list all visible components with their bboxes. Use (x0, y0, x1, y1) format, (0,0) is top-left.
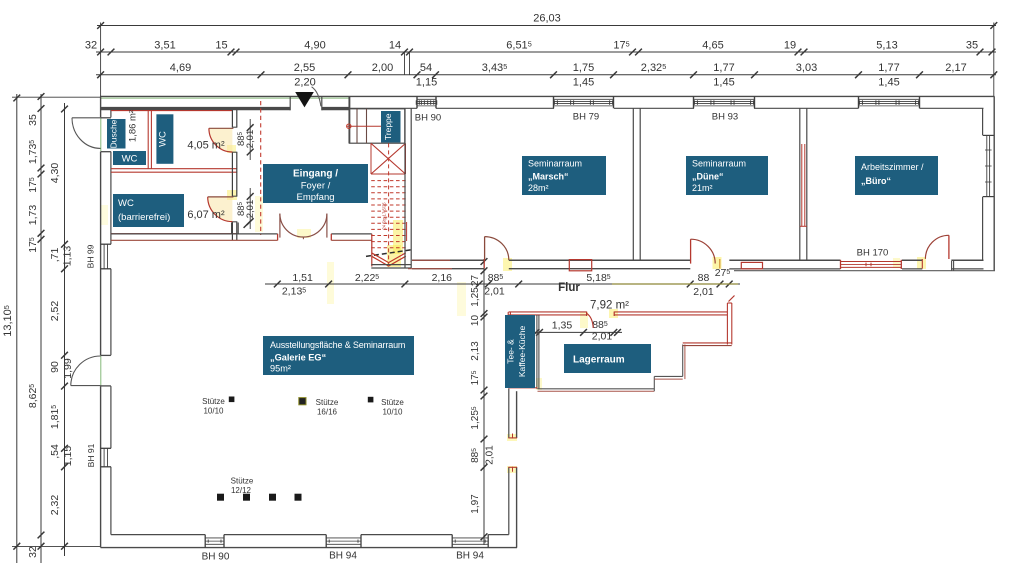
svg-text:Seminarraum: Seminarraum (692, 159, 746, 169)
svg-text:10/10: 10/10 (382, 408, 403, 417)
svg-text:90: 90 (49, 361, 61, 373)
svg-text:21m²: 21m² (692, 183, 713, 193)
svg-text:WC: WC (122, 154, 138, 165)
svg-text:35: 35 (27, 114, 39, 126)
svg-text:28m²: 28m² (528, 183, 549, 193)
svg-text:BH 94: BH 94 (456, 551, 484, 562)
svg-text:6,07 m²: 6,07 m² (187, 209, 225, 221)
svg-text:„Düne“: „Düne“ (692, 172, 724, 182)
svg-text:4,90: 4,90 (304, 40, 325, 52)
svg-text:„Galerie EG“: „Galerie EG“ (270, 353, 326, 363)
svg-text:Tee- &: Tee- & (506, 339, 516, 364)
svg-text:95m²: 95m² (270, 364, 291, 374)
svg-text:Flur: Flur (558, 282, 580, 294)
svg-text:Kaffee-Küche: Kaffee-Küche (517, 326, 527, 378)
svg-text:7,92 m²: 7,92 m² (590, 300, 629, 312)
svg-text:3,03: 3,03 (796, 62, 817, 74)
svg-text:3,51: 3,51 (154, 40, 175, 52)
svg-text:2,01: 2,01 (245, 130, 256, 149)
svg-text:Treppe: Treppe (383, 113, 393, 140)
svg-text:Seminarraum: Seminarraum (528, 159, 582, 169)
svg-text:,71: ,71 (49, 248, 61, 263)
svg-text:4,05 m²: 4,05 m² (187, 140, 225, 152)
svg-text:4,65: 4,65 (702, 40, 723, 52)
svg-text:14: 14 (389, 40, 401, 52)
svg-text:35: 35 (966, 40, 978, 52)
svg-text:32: 32 (85, 40, 97, 52)
svg-text:1,75: 1,75 (573, 62, 594, 74)
svg-text:BH 94: BH 94 (329, 551, 357, 562)
svg-text:2,01: 2,01 (245, 200, 256, 219)
svg-text:BH 93: BH 93 (712, 112, 738, 123)
svg-text:4,30: 4,30 (49, 163, 61, 184)
svg-text:10/10: 10/10 (203, 407, 224, 416)
svg-text:1,45: 1,45 (713, 77, 734, 89)
svg-text:10: 10 (470, 315, 481, 327)
svg-text:Eingang /: Eingang / (293, 169, 338, 180)
svg-text:Empfang: Empfang (296, 192, 334, 203)
svg-text:1,25: 1,25 (470, 287, 481, 307)
svg-text:2,01: 2,01 (592, 331, 613, 343)
svg-text:1,13: 1,13 (62, 246, 74, 267)
svg-text:BH 91: BH 91 (86, 443, 96, 467)
svg-text:1,97: 1,97 (470, 494, 481, 514)
svg-text:13,105: 13,105 (2, 305, 14, 337)
svg-text:BH 79: BH 79 (573, 112, 599, 123)
svg-text:WC: WC (158, 131, 169, 147)
svg-text:1,15: 1,15 (416, 77, 437, 89)
svg-text:88: 88 (698, 272, 710, 284)
svg-text:WC: WC (118, 198, 134, 209)
svg-text:BH 90: BH 90 (415, 113, 441, 124)
svg-text:BH 99: BH 99 (86, 244, 96, 268)
svg-text:2,32: 2,32 (49, 495, 61, 516)
svg-text:2,01: 2,01 (485, 445, 496, 465)
svg-text:Stütze: Stütze (202, 397, 225, 406)
svg-text:Stütze: Stütze (381, 398, 404, 407)
svg-text:2,00: 2,00 (372, 62, 393, 74)
svg-text:19: 19 (784, 40, 796, 52)
svg-text:12/12: 12/12 (231, 486, 252, 495)
svg-text:32: 32 (27, 546, 39, 558)
svg-text:„Büro“: „Büro“ (861, 176, 891, 186)
svg-text:„Marsch“: „Marsch“ (528, 172, 569, 182)
svg-text:Stütze: Stütze (231, 477, 254, 486)
svg-text:Arbeitszimmer /: Arbeitszimmer / (861, 162, 924, 172)
svg-text:24 Stg 17,5/25: 24 Stg 17,5/25 (382, 202, 387, 230)
svg-text:1,51: 1,51 (292, 272, 313, 284)
svg-text:Stütze: Stütze (316, 398, 339, 407)
svg-text:1,77: 1,77 (713, 62, 734, 74)
svg-text:1,86 m²: 1,86 m² (128, 110, 139, 142)
svg-text:Dusche: Dusche (109, 119, 119, 148)
svg-text:2,16: 2,16 (432, 272, 453, 284)
svg-text:2,13: 2,13 (470, 341, 481, 361)
svg-text:1,45: 1,45 (878, 77, 899, 89)
svg-text:54: 54 (420, 62, 432, 74)
svg-text:1,77: 1,77 (878, 62, 899, 74)
svg-text:2,01: 2,01 (693, 286, 714, 298)
svg-text:1,45: 1,45 (573, 77, 594, 89)
svg-text:BH 90: BH 90 (202, 552, 230, 563)
svg-text:4,69: 4,69 (170, 62, 191, 74)
svg-text:2,17: 2,17 (945, 62, 966, 74)
svg-text:27: 27 (470, 275, 481, 287)
svg-text:Foyer /: Foyer / (301, 181, 331, 192)
svg-text:5,13: 5,13 (876, 40, 897, 52)
svg-text:15: 15 (215, 40, 227, 52)
svg-text:(barrierefrei): (barrierefrei) (118, 212, 170, 223)
svg-text:1,35: 1,35 (552, 320, 573, 332)
svg-text:1,73: 1,73 (27, 205, 39, 226)
svg-text:2,52: 2,52 (49, 301, 61, 322)
svg-text:2,55: 2,55 (294, 62, 315, 74)
svg-text:16/16: 16/16 (317, 408, 338, 417)
svg-text:BH 170: BH 170 (857, 248, 889, 259)
svg-text:26,03: 26,03 (533, 13, 561, 25)
svg-text:Lagerraum: Lagerraum (573, 355, 625, 366)
svg-text:2,01: 2,01 (484, 286, 505, 298)
svg-text:,54: ,54 (49, 444, 61, 459)
svg-text:1,15: 1,15 (62, 446, 74, 467)
svg-text:2,20: 2,20 (294, 77, 315, 89)
svg-text:Ausstellungsfläche & Seminarra: Ausstellungsfläche & Seminarraum (270, 340, 405, 350)
